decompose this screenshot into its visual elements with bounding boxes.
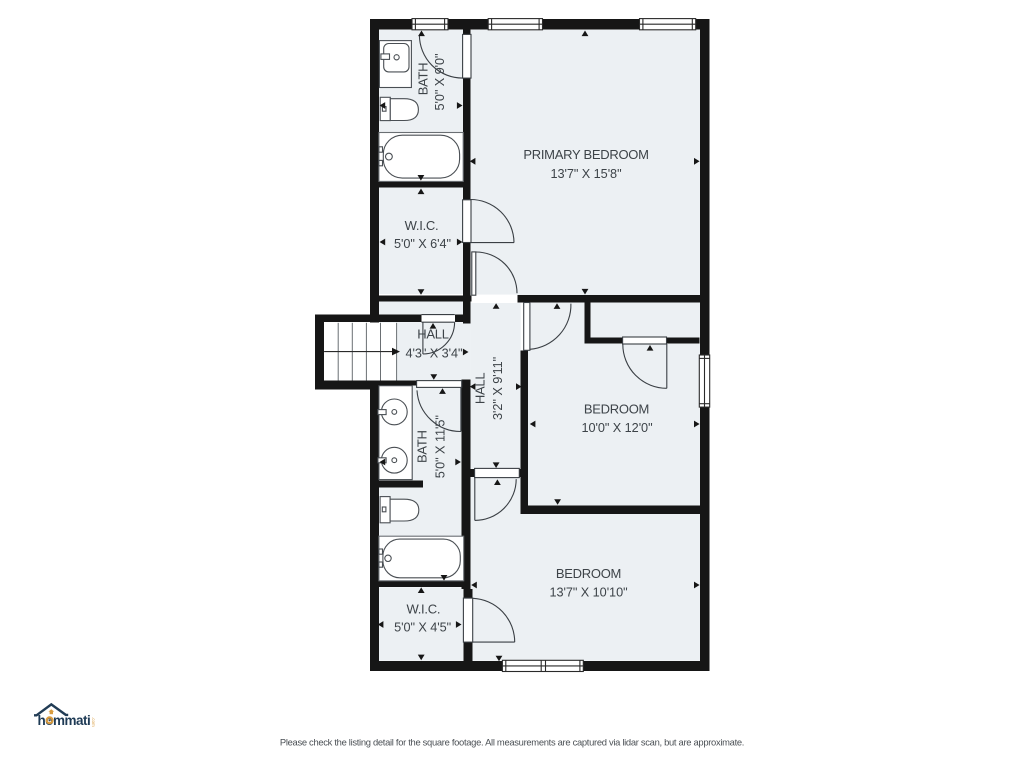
svg-text:3'2" X 9'11": 3'2" X 9'11" <box>491 357 505 420</box>
svg-text:5'0" X 4'5": 5'0" X 4'5" <box>394 621 451 635</box>
svg-text:BEDROOM: BEDROOM <box>584 402 649 417</box>
svg-text:5'0" X 11'5": 5'0" X 11'5" <box>433 415 447 478</box>
svg-text:hommati: hommati <box>38 713 91 728</box>
svg-text:PRIMARY BEDROOM: PRIMARY BEDROOM <box>523 147 648 162</box>
svg-text:10'0" X 12'0": 10'0" X 12'0" <box>581 421 652 435</box>
svg-text:5'0" X 6'4": 5'0" X 6'4" <box>394 237 451 251</box>
svg-text:BATH: BATH <box>416 63 431 96</box>
svg-text:13'7" X 15'8": 13'7" X 15'8" <box>550 167 621 181</box>
svg-text:W.I.C.: W.I.C. <box>406 602 440 617</box>
svg-text:HALL: HALL <box>417 327 448 342</box>
svg-text:5'0" X 9'0": 5'0" X 9'0" <box>433 53 447 110</box>
svg-text:.com: .com <box>91 717 96 727</box>
svg-text:4'3" X 3'4": 4'3" X 3'4" <box>405 347 462 361</box>
svg-text:Please check the listing detai: Please check the listing detail for the … <box>280 737 744 748</box>
svg-text:13'7" X 10'10": 13'7" X 10'10" <box>549 586 627 600</box>
svg-text:BEDROOM: BEDROOM <box>556 566 621 581</box>
svg-text:BATH: BATH <box>414 430 429 463</box>
svg-text:W.I.C.: W.I.C. <box>405 218 439 233</box>
